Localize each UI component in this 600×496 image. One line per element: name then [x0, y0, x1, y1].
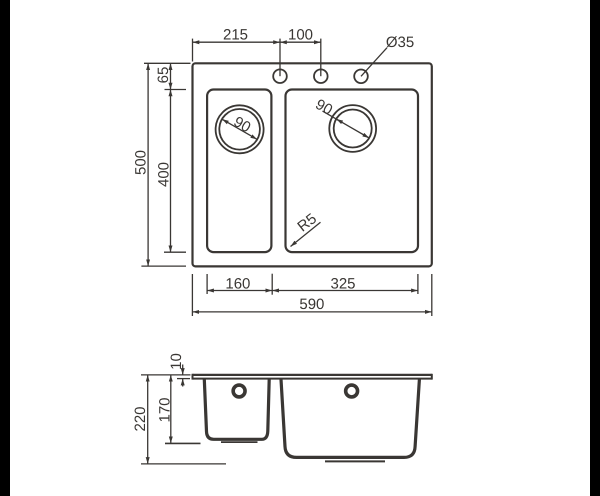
svg-text:325: 325 [330, 276, 355, 293]
svg-text:100: 100 [288, 26, 313, 43]
svg-text:Ø35: Ø35 [386, 34, 414, 51]
svg-text:400: 400 [156, 162, 173, 187]
svg-text:90: 90 [231, 113, 254, 136]
svg-text:500: 500 [132, 150, 149, 175]
svg-text:220: 220 [132, 406, 149, 431]
svg-text:R5: R5 [294, 210, 320, 235]
svg-text:160: 160 [225, 276, 250, 293]
svg-text:10: 10 [168, 353, 185, 370]
svg-text:170: 170 [156, 397, 173, 422]
svg-text:65: 65 [155, 67, 172, 84]
svg-text:90: 90 [312, 96, 335, 119]
svg-text:215: 215 [223, 26, 248, 43]
svg-text:590: 590 [299, 296, 324, 313]
